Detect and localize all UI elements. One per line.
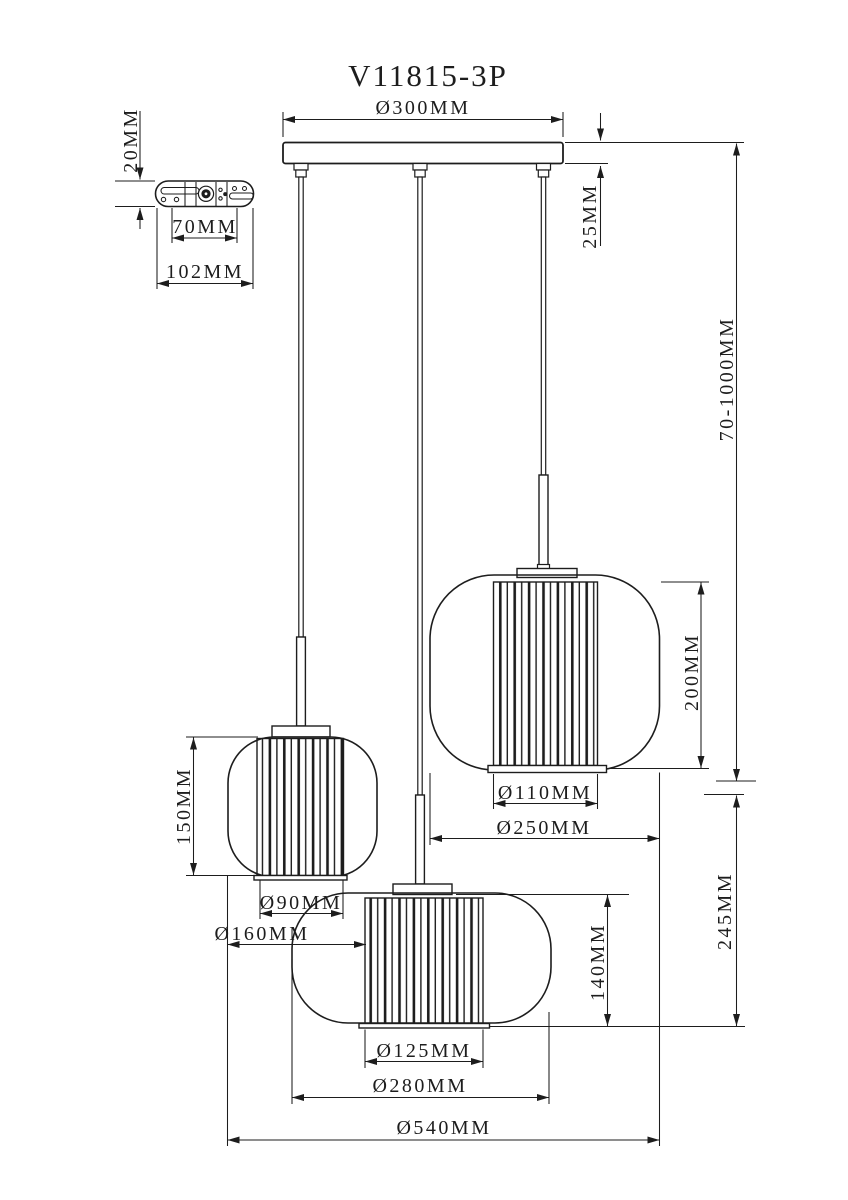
- cap-left: [272, 726, 330, 737]
- pendant-lamp-dimension-drawing: V11815-3P 20MM: [0, 0, 848, 1200]
- dim-canopy-height-label: 25MM: [579, 183, 601, 249]
- dim-left-inner-diameter-label: Ø90MM: [260, 892, 343, 914]
- dim-lower-section-label: 245MM: [714, 872, 736, 950]
- canopy-body: [283, 143, 563, 164]
- pendant-left-group: [228, 177, 377, 880]
- cord-mount-right: [537, 164, 551, 178]
- cord-mount-left: [294, 164, 308, 178]
- shade-bottom-plate: [359, 1024, 490, 1029]
- cord-left: [299, 177, 303, 637]
- cap-right: [517, 569, 577, 578]
- cord-middle: [418, 177, 422, 795]
- drawing-title: V11815-3P: [348, 58, 508, 93]
- shade-right-ribs: [494, 582, 598, 766]
- pendant-right-group: [430, 177, 660, 773]
- rod-middle: [416, 795, 425, 884]
- dim-left-shade-height-label: 150MM: [173, 767, 195, 845]
- dim-total-width-label: Ø540MM: [396, 1117, 491, 1139]
- rod-right: [539, 475, 548, 565]
- rod-left: [297, 637, 306, 726]
- dim-cord-length-label: 70-1000MM: [716, 317, 738, 442]
- dim-canopy-diameter-label: Ø300MM: [375, 97, 470, 119]
- cord-right: [541, 177, 545, 475]
- mount-bracket-group: [156, 181, 254, 207]
- shade-left-ribs: [257, 739, 344, 876]
- technical-drawing-page: V11815-3P 20MM: [0, 0, 848, 1200]
- dim-right-shade-height-label: 200MM: [681, 633, 703, 711]
- cord-mount-middle: [413, 164, 427, 178]
- dim-bottom-inner-diameter-label: Ø125MM: [376, 1040, 471, 1062]
- dim-bottom-shade-height-label: 140MM: [587, 923, 609, 1001]
- shade-bottom-ribs: [365, 898, 483, 1024]
- dim-20mm-label: 20MM: [120, 107, 142, 173]
- shade-right-plate: [488, 766, 607, 773]
- dim-70mm-label: 70MM: [172, 216, 238, 238]
- dim-left-outer-diameter-label: Ø160MM: [214, 923, 309, 945]
- shade-left-plate: [254, 876, 347, 881]
- dim-bottom-outer-diameter-label: Ø280MM: [372, 1075, 467, 1097]
- dim-right-outer-diameter-label: Ø250MM: [496, 817, 591, 839]
- dim-102mm-label: 102MM: [166, 261, 244, 283]
- bracket-pin: [223, 192, 227, 196]
- dim-right-inner-diameter-label: Ø110MM: [498, 782, 592, 804]
- canopy-group: [283, 143, 563, 178]
